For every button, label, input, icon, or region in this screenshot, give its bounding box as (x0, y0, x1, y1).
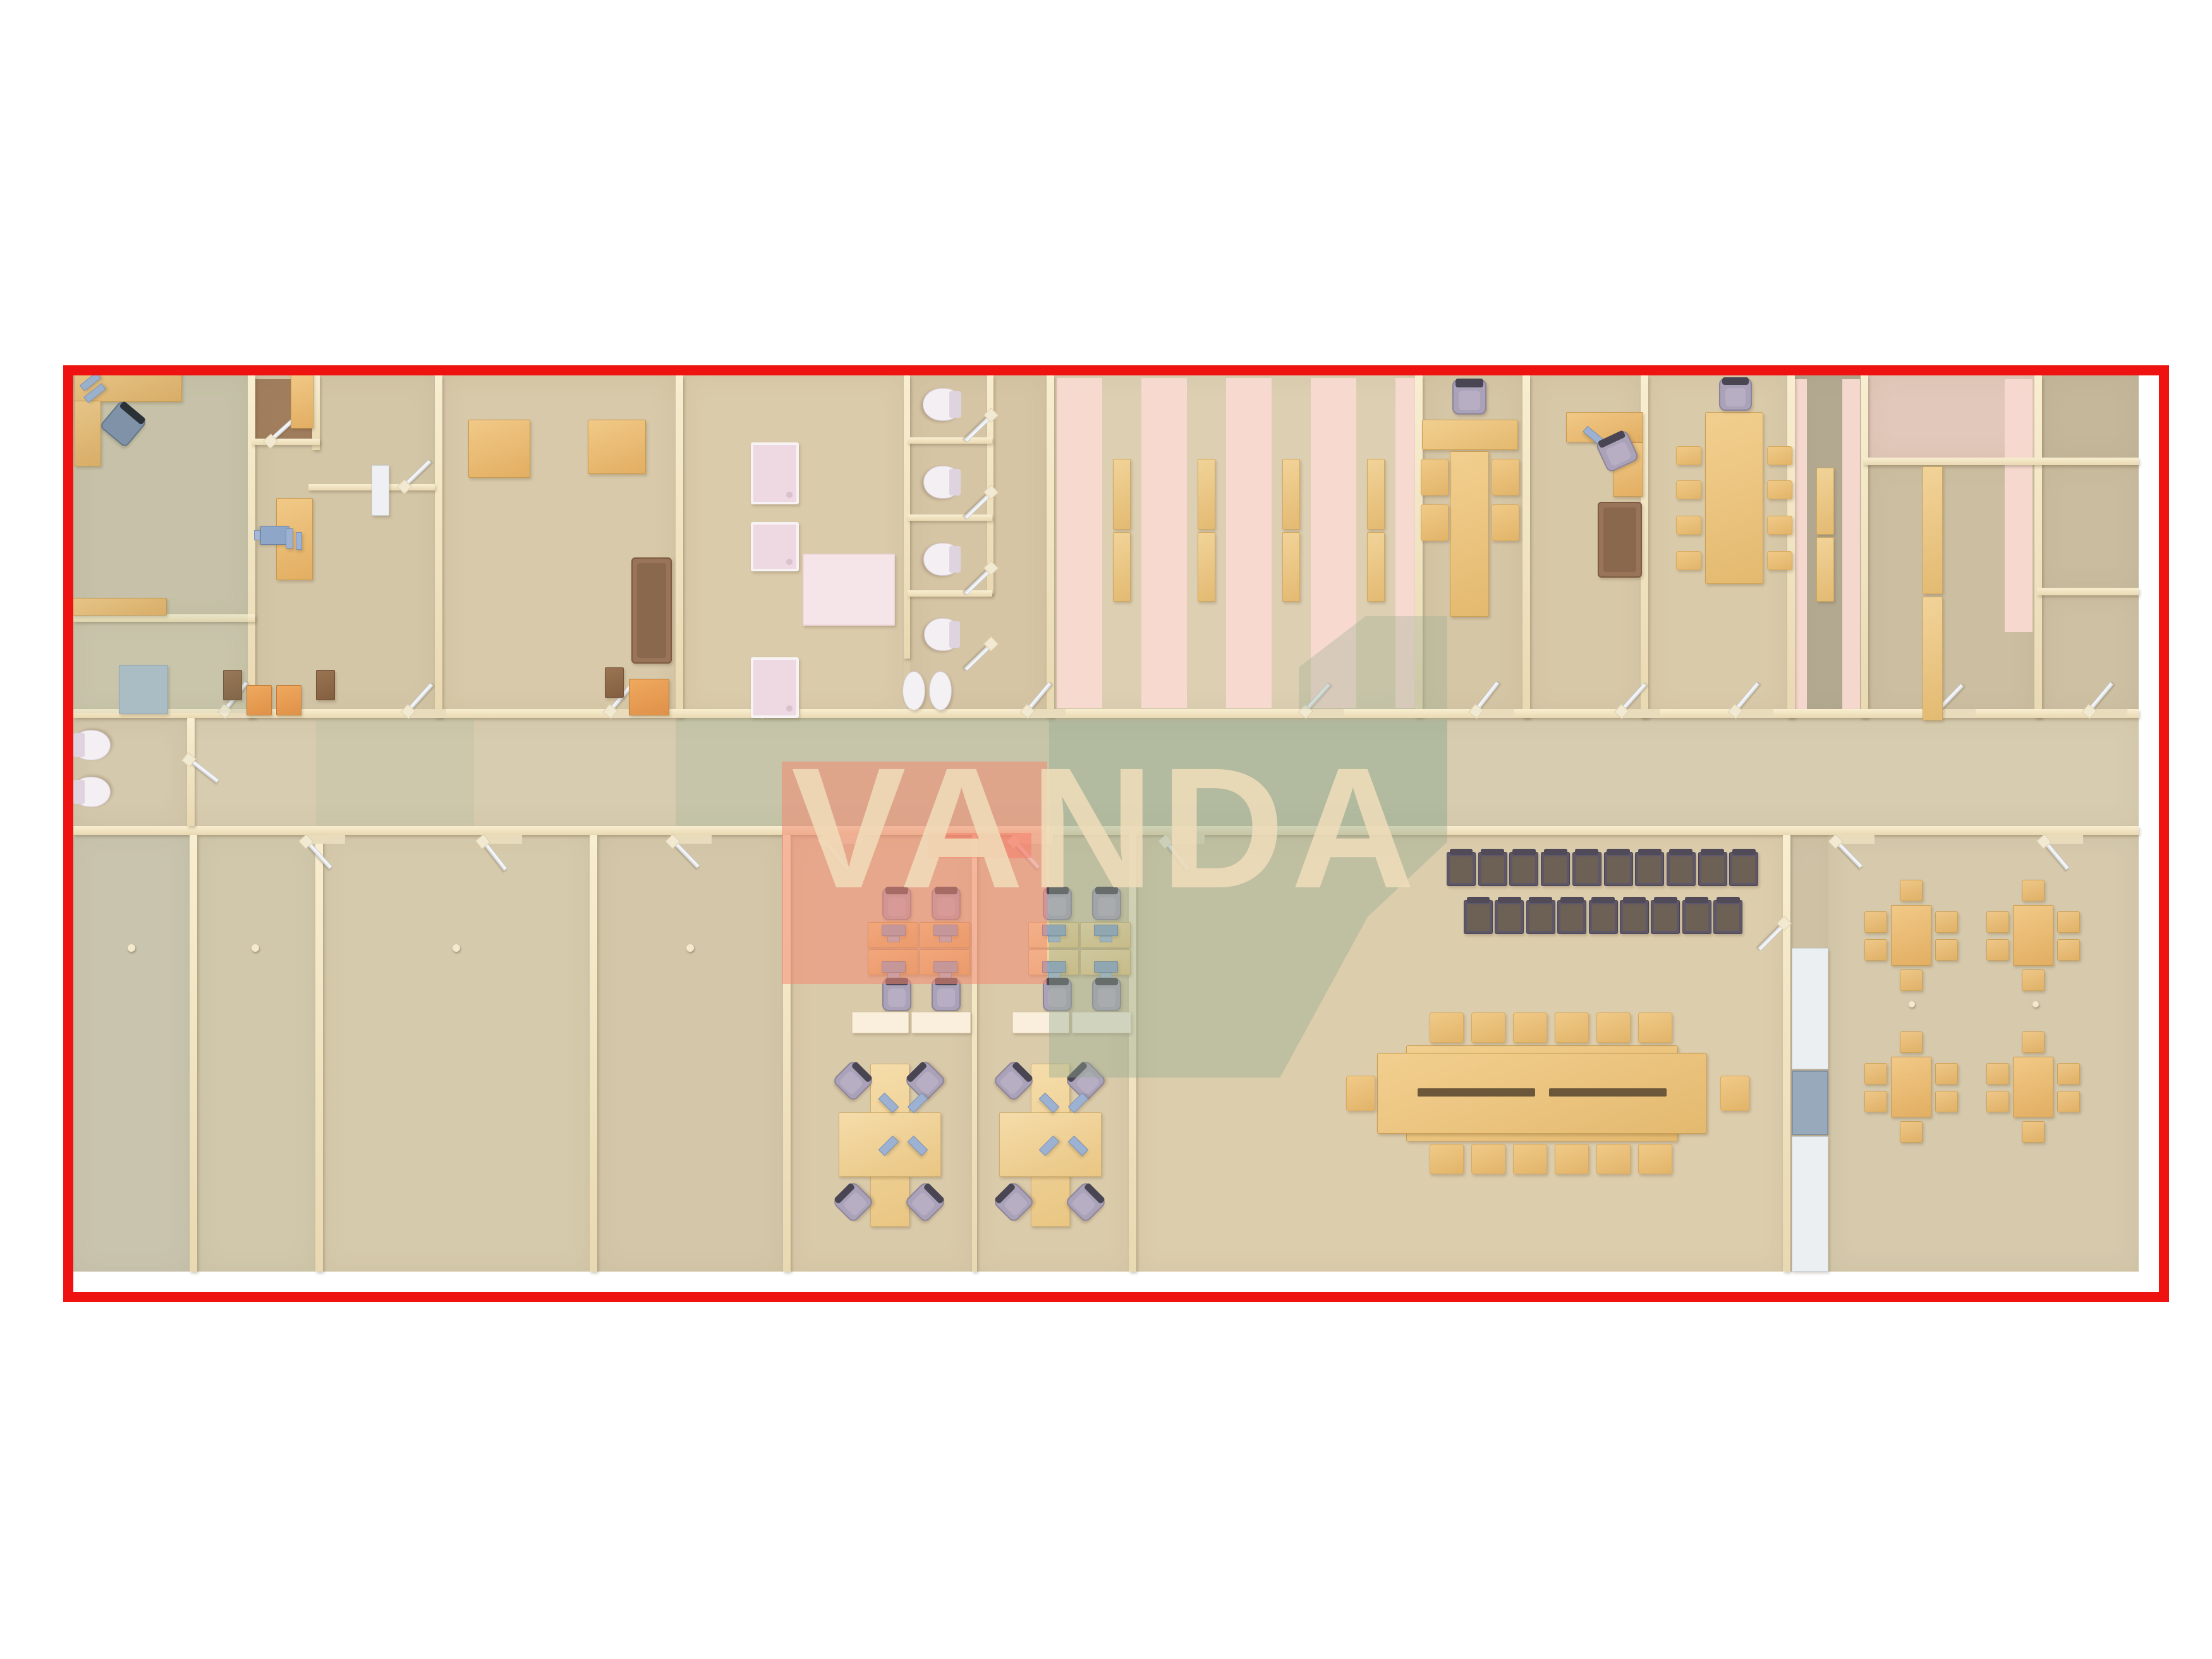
side-table (276, 685, 301, 715)
monitor (933, 925, 957, 936)
stool (1767, 551, 1792, 570)
wall (2034, 375, 2042, 718)
dining-chair (2022, 1031, 2045, 1053)
room-bottom-left-2 (197, 835, 315, 1272)
side-table (246, 685, 272, 715)
wall (252, 439, 320, 445)
stool (1430, 1144, 1464, 1174)
stool (1638, 1012, 1672, 1043)
stool (1720, 1076, 1749, 1111)
office-chair (932, 978, 961, 1011)
bench (1367, 532, 1385, 602)
office-chair (1452, 379, 1486, 415)
toilet (74, 777, 111, 807)
watermark-text: VANDA (791, 738, 1486, 919)
cabinet (316, 670, 335, 700)
room-far-right-3 (2042, 595, 2139, 713)
stool (1421, 459, 1449, 495)
dining-chair (1864, 1063, 1887, 1085)
sofa (631, 557, 672, 664)
reception-table (372, 465, 389, 516)
monitor (882, 961, 906, 973)
sideboard (1072, 1012, 1131, 1033)
monitor (882, 925, 906, 936)
stool (1492, 504, 1519, 541)
conference-table (1705, 412, 1763, 584)
stool (1676, 480, 1701, 499)
office-chair (882, 978, 911, 1011)
waiting-chair (1620, 900, 1649, 934)
wall (315, 835, 323, 1272)
floor-plan-render: VANDA (0, 0, 2212, 1659)
wall (908, 590, 992, 597)
floor-stripe (1226, 378, 1272, 708)
room-bottom-left-1 (73, 835, 190, 1272)
dining-chair (2057, 939, 2080, 961)
stool (1492, 459, 1519, 495)
dining-chair (1864, 1091, 1887, 1112)
sofa (1598, 502, 1642, 578)
wall (676, 375, 683, 718)
bench (1816, 537, 1834, 602)
floor-drain (1909, 1001, 1915, 1007)
side-table (629, 679, 669, 715)
sideboard (911, 1012, 971, 1033)
dining-table (1891, 905, 1931, 966)
monitor (1042, 925, 1066, 936)
dining-chair (1864, 911, 1887, 933)
bench (1923, 466, 1943, 594)
wall (248, 375, 255, 718)
wall (435, 375, 442, 718)
room-dining (1828, 835, 2139, 1272)
conference-table (1422, 420, 1518, 450)
bench (1816, 468, 1834, 535)
waiting-chair (1541, 852, 1570, 886)
room-far-right-2 (2042, 465, 2139, 588)
bench (1367, 459, 1385, 530)
office-chair (1719, 378, 1752, 411)
bench (1113, 532, 1131, 602)
refrigerator (1792, 1071, 1828, 1135)
bench (1198, 532, 1215, 602)
wall (908, 514, 992, 521)
waiting-chair (1509, 852, 1538, 886)
stool (1513, 1012, 1547, 1043)
bench (1923, 597, 1943, 720)
dining-chair (1900, 880, 1923, 901)
dining-chair (1986, 939, 2009, 961)
table-slot (1549, 1088, 1667, 1097)
floor-drain (2033, 1001, 2039, 1007)
wall (1861, 375, 1868, 718)
cabinet (605, 667, 624, 698)
stool (1471, 1012, 1505, 1043)
dining-chair (1900, 1031, 1923, 1053)
waiting-chair (1651, 900, 1680, 934)
wall (1047, 375, 1054, 718)
room-bottom-left-3 (323, 835, 590, 1272)
desk-papers (296, 532, 302, 550)
stool (1638, 1144, 1672, 1174)
stool (1767, 480, 1792, 499)
sideboard (1012, 1012, 1069, 1033)
desk (588, 420, 646, 474)
wall (1783, 835, 1790, 1272)
bench (1282, 459, 1300, 530)
dining-chair (1935, 1091, 1958, 1112)
wall (1522, 375, 1530, 718)
desk (72, 598, 167, 616)
floor-stripe (1842, 379, 1860, 709)
waiting-chair (1682, 900, 1711, 934)
desk-papers (286, 528, 293, 549)
dining-chair (1935, 939, 1958, 961)
kitchen-cabinet (1792, 948, 1828, 1069)
waiting-chair (1526, 900, 1555, 934)
waiting-chair (1729, 852, 1758, 886)
wall (1787, 375, 1795, 718)
waiting-chair (1495, 900, 1524, 934)
wall (908, 437, 992, 444)
shower (751, 522, 799, 571)
shower (751, 657, 799, 718)
stool (1596, 1144, 1631, 1174)
wall (73, 709, 2139, 718)
bench (1282, 532, 1300, 602)
stool (1346, 1076, 1375, 1111)
toilet (74, 730, 111, 760)
bench (1198, 459, 1215, 530)
table (119, 665, 168, 714)
waiting-chair (1713, 900, 1742, 934)
toilet (923, 388, 961, 421)
waiting-chair (1635, 852, 1664, 886)
stool (1513, 1144, 1547, 1174)
wall (2037, 588, 2139, 595)
floor-drain (453, 944, 460, 952)
wall (783, 835, 791, 1272)
dining-chair (1864, 939, 1887, 961)
dining-table (2013, 1057, 2053, 1117)
floor-drain (128, 944, 135, 952)
toilet (923, 543, 960, 576)
floor-drain (686, 944, 694, 952)
stool (1596, 1012, 1631, 1043)
waiting-chair (1698, 852, 1727, 886)
cabinet (223, 670, 242, 700)
shower (751, 442, 799, 504)
desk (291, 373, 313, 428)
stool (1767, 446, 1792, 465)
desk (468, 420, 530, 478)
stool (1555, 1012, 1589, 1043)
toilet (924, 618, 959, 651)
dining-chair (2057, 911, 2080, 933)
sideboard (852, 1012, 909, 1033)
floor-drain (252, 944, 259, 952)
wall (187, 718, 195, 826)
toilet (923, 466, 960, 499)
sink (902, 671, 925, 710)
stool (1767, 516, 1792, 535)
floor-stripe (1057, 378, 1102, 708)
dining-chair (1986, 1091, 2009, 1112)
monitor (1094, 961, 1118, 973)
stool (1676, 551, 1701, 570)
dining-chair (2022, 969, 2045, 991)
dining-chair (2022, 1121, 2045, 1143)
room-bottom-left-4 (597, 835, 783, 1272)
stool (1421, 504, 1449, 541)
sink (929, 671, 952, 710)
bench (1113, 459, 1131, 530)
wall (190, 835, 197, 1272)
stool (1676, 516, 1701, 535)
stool (1430, 1012, 1464, 1043)
monitor (933, 961, 957, 973)
kitchen-cabinet (1792, 1136, 1828, 1272)
dining-chair (1935, 1063, 1958, 1085)
waiting-chair (1557, 900, 1586, 934)
conference-table (1450, 451, 1489, 617)
wall (1863, 458, 2139, 465)
dining-chair (1986, 911, 2009, 933)
stool (1471, 1144, 1505, 1174)
waiting-chair (1667, 852, 1696, 886)
dining-chair (2022, 880, 2045, 901)
office-chair (1043, 978, 1072, 1011)
floor-stripe (2005, 379, 2033, 632)
dining-chair (1900, 1121, 1923, 1143)
dining-table (1891, 1057, 1931, 1117)
stool (1555, 1144, 1589, 1174)
bath-mat (803, 554, 895, 626)
dining-chair (1935, 911, 1958, 933)
dining-chair (1900, 969, 1923, 991)
floor-stripe (1311, 378, 1356, 708)
table-slot (1418, 1088, 1535, 1097)
room-far-right-1 (2042, 375, 2139, 458)
dining-chair (1986, 1063, 2009, 1085)
dining-chair (2057, 1091, 2080, 1112)
desk (75, 401, 101, 466)
waiting-chair (1589, 900, 1618, 934)
stool (1676, 446, 1701, 465)
dining-chair (2057, 1063, 2080, 1085)
office-chair (1092, 978, 1121, 1011)
floor-stripe (1395, 378, 1415, 708)
monitor (1094, 925, 1118, 936)
wall (590, 835, 597, 1272)
floor-stripe (1141, 378, 1187, 708)
dining-table (2013, 905, 2053, 966)
waiting-chair (1572, 852, 1601, 886)
monitor (1042, 961, 1066, 973)
waiting-chair (1604, 852, 1633, 886)
